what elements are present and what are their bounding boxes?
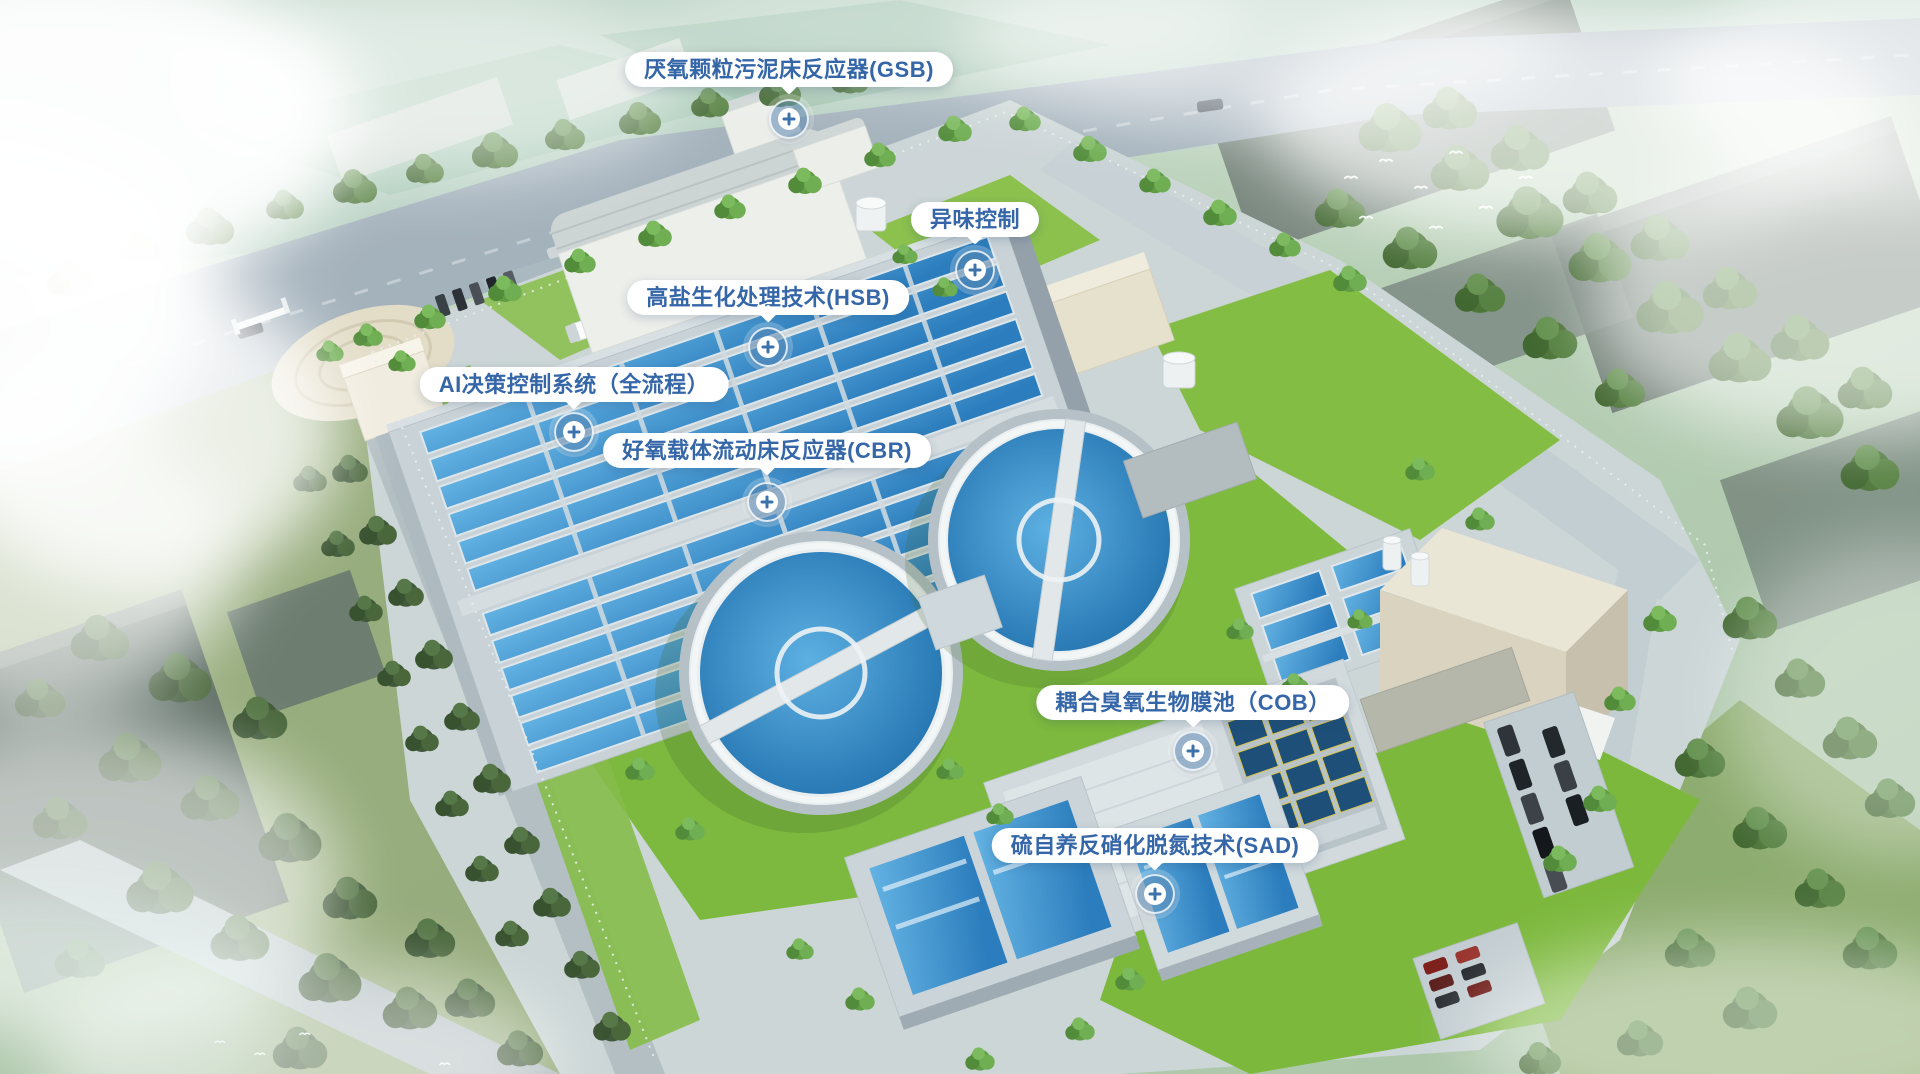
callout-cob[interactable]: 耦合臭氧生物膜池（COB）	[1036, 685, 1349, 720]
callout-sad[interactable]: 硫自养反硝化脱氮技术(SAD)	[992, 828, 1319, 863]
hotspot-ai[interactable]	[554, 412, 594, 452]
callout-hsb[interactable]: 高盐生化处理技术(HSB)	[627, 280, 909, 315]
plus-icon	[563, 421, 585, 443]
callout-cbr[interactable]: 好氧载体流动床反应器(CBR)	[603, 433, 931, 468]
callout-label: 高盐生化处理技术(HSB)	[646, 285, 890, 310]
plus-icon	[778, 108, 800, 130]
callout-label: 好氧载体流动床反应器(CBR)	[622, 438, 912, 463]
callout-label: AI决策控制系统（全流程）	[439, 372, 710, 397]
callout-label: 异味控制	[930, 207, 1020, 232]
hotspot-gsb[interactable]	[769, 99, 809, 139]
callout-label: 厌氧颗粒污泥床反应器(GSB)	[644, 57, 934, 82]
plant-aerial-view: 厌氧颗粒污泥床反应器(GSB)异味控制高盐生化处理技术(HSB)AI决策控制系统…	[0, 0, 1920, 1074]
hotspot-odor[interactable]	[955, 250, 995, 290]
hotspot-cob[interactable]	[1173, 731, 1213, 771]
plus-icon	[757, 336, 779, 358]
callout-label: 硫自养反硝化脱氮技术(SAD)	[1011, 833, 1300, 858]
callout-odor[interactable]: 异味控制	[911, 202, 1039, 237]
plus-icon	[964, 259, 986, 281]
callout-gsb[interactable]: 厌氧颗粒污泥床反应器(GSB)	[625, 52, 953, 87]
plus-icon	[1182, 740, 1204, 762]
callout-label: 耦合臭氧生物膜池（COB）	[1055, 690, 1330, 715]
plus-icon	[756, 491, 778, 513]
callout-ai[interactable]: AI决策控制系统（全流程）	[420, 367, 729, 402]
plus-icon	[1144, 883, 1166, 905]
annotation-layer: 厌氧颗粒污泥床反应器(GSB)异味控制高盐生化处理技术(HSB)AI决策控制系统…	[0, 0, 1920, 1074]
hotspot-cbr[interactable]	[747, 482, 787, 522]
hotspot-hsb[interactable]	[748, 327, 788, 367]
hotspot-sad[interactable]	[1135, 874, 1175, 914]
